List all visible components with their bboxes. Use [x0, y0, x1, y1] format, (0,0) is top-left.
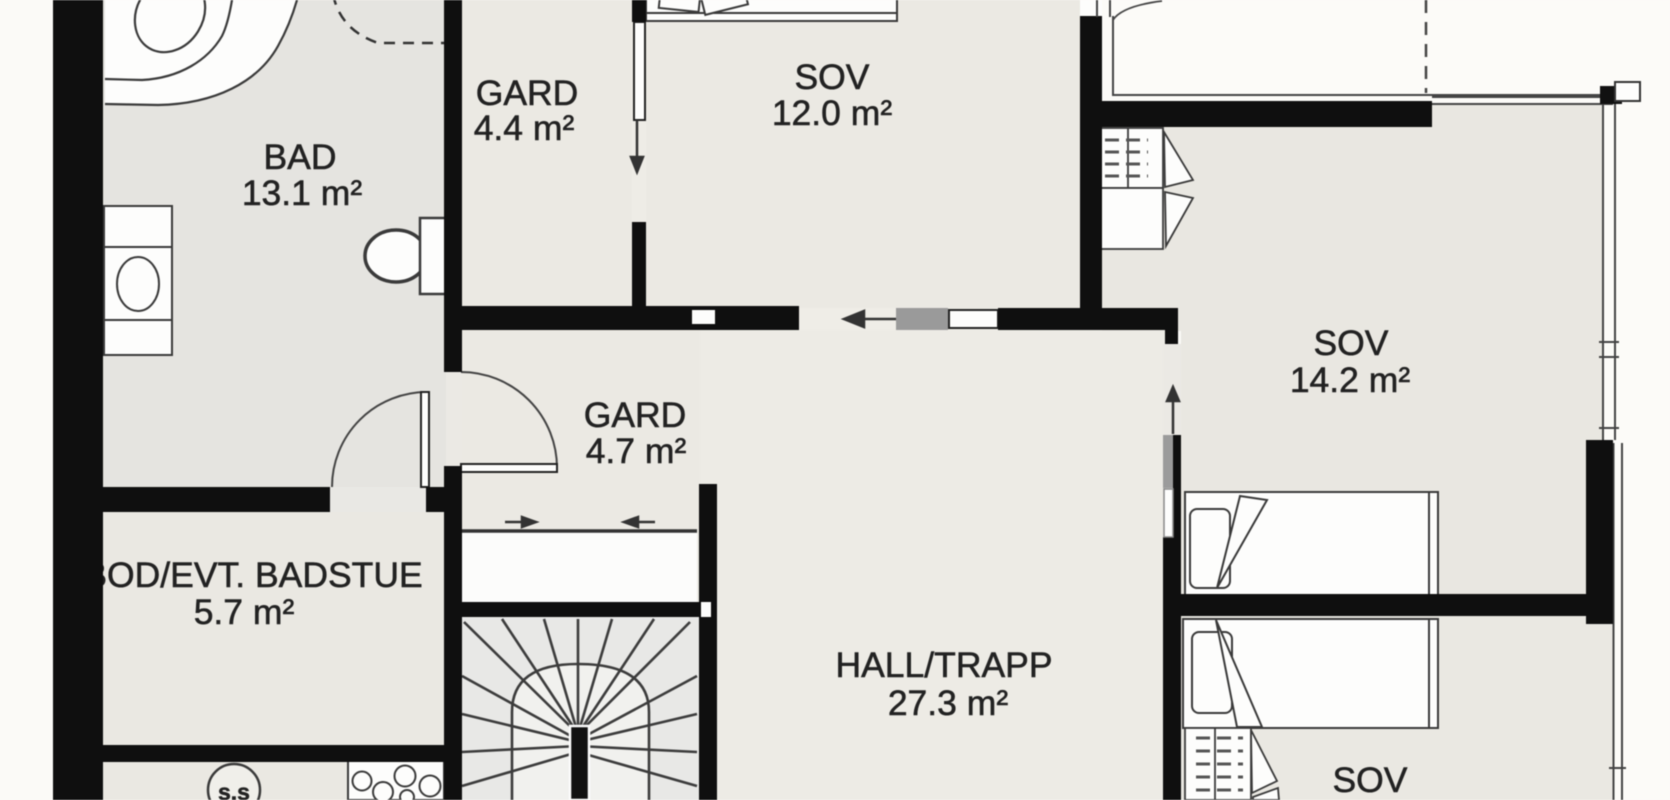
svg-text:12.0 m²: 12.0 m² [772, 93, 893, 133]
svg-text:27.3 m²: 27.3 m² [888, 683, 1009, 723]
svg-text:4.7 m²: 4.7 m² [586, 431, 687, 471]
svg-text:BAD: BAD [264, 137, 337, 177]
svg-text:s.s: s.s [218, 779, 250, 800]
svg-text:4.4 m²: 4.4 m² [474, 108, 575, 148]
svg-text:SOV: SOV [795, 57, 870, 97]
svg-text:13.1 m²: 13.1 m² [242, 173, 363, 213]
svg-text:5.7 m²: 5.7 m² [194, 592, 295, 632]
svg-text:GARD: GARD [584, 395, 687, 435]
svg-text:SOV: SOV [1333, 760, 1408, 800]
svg-text:GARD: GARD [476, 73, 579, 113]
svg-text:HALL/TRAPP: HALL/TRAPP [835, 645, 1052, 685]
svg-text:SOV: SOV [1314, 323, 1389, 363]
svg-text:BOD/EVT. BADSTUE: BOD/EVT. BADSTUE [83, 555, 422, 595]
svg-text:14.2 m²: 14.2 m² [1290, 360, 1411, 400]
